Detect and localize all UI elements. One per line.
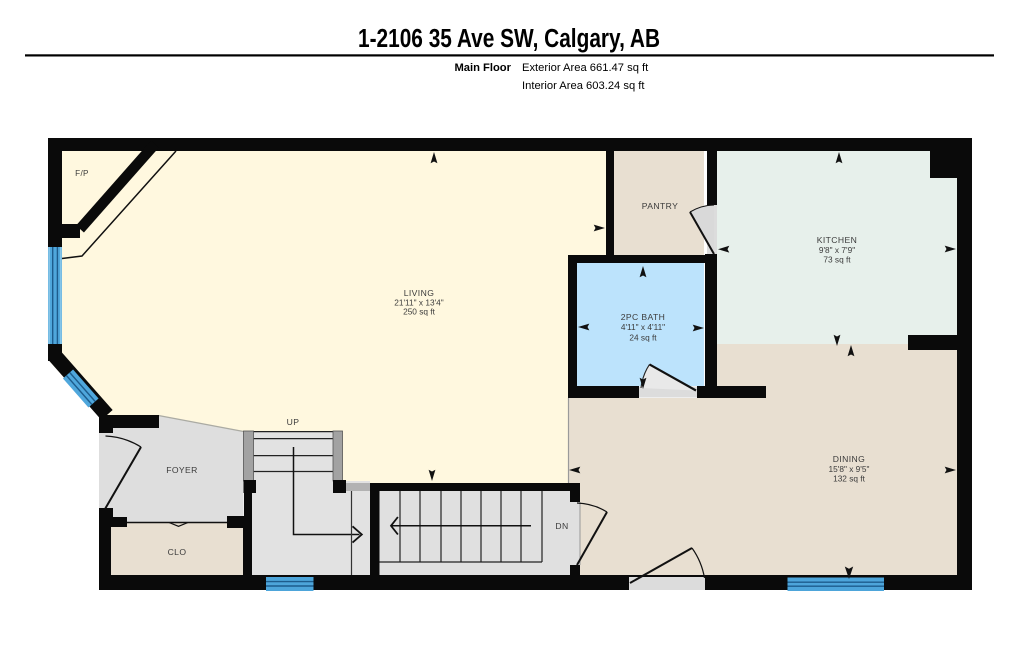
svg-text:KITCHEN: KITCHEN (817, 235, 858, 245)
svg-text:DN: DN (555, 521, 568, 531)
svg-text:UP: UP (287, 417, 300, 427)
svg-text:24 sq ft: 24 sq ft (629, 333, 657, 343)
svg-text:2PC BATH: 2PC BATH (621, 312, 666, 322)
svg-text:DINING: DINING (833, 454, 865, 464)
svg-text:CLO: CLO (168, 547, 187, 557)
svg-text:73 sq ft: 73 sq ft (823, 255, 851, 265)
svg-text:PANTRY: PANTRY (642, 201, 678, 211)
svg-text:132 sq ft: 132 sq ft (833, 474, 866, 484)
svg-text:Exterior Area 661.47 sq ft: Exterior Area 661.47 sq ft (522, 62, 649, 74)
svg-text:Main Floor: Main Floor (454, 62, 511, 74)
svg-text:FOYER: FOYER (166, 465, 198, 475)
svg-text:Interior Area 603.24 sq ft: Interior Area 603.24 sq ft (522, 80, 645, 92)
svg-text:LIVING: LIVING (404, 288, 435, 298)
svg-text:F/P: F/P (75, 169, 89, 178)
svg-text:15'8" x 9'5": 15'8" x 9'5" (829, 464, 870, 474)
svg-text:1-2106 35 Ave SW, Calgary, AB: 1-2106 35 Ave SW, Calgary, AB (358, 25, 660, 53)
svg-text:250 sq ft: 250 sq ft (403, 307, 436, 317)
svg-text:9'8" x 7'9": 9'8" x 7'9" (819, 245, 855, 255)
svg-text:4'11" x 4'11": 4'11" x 4'11" (621, 322, 665, 332)
